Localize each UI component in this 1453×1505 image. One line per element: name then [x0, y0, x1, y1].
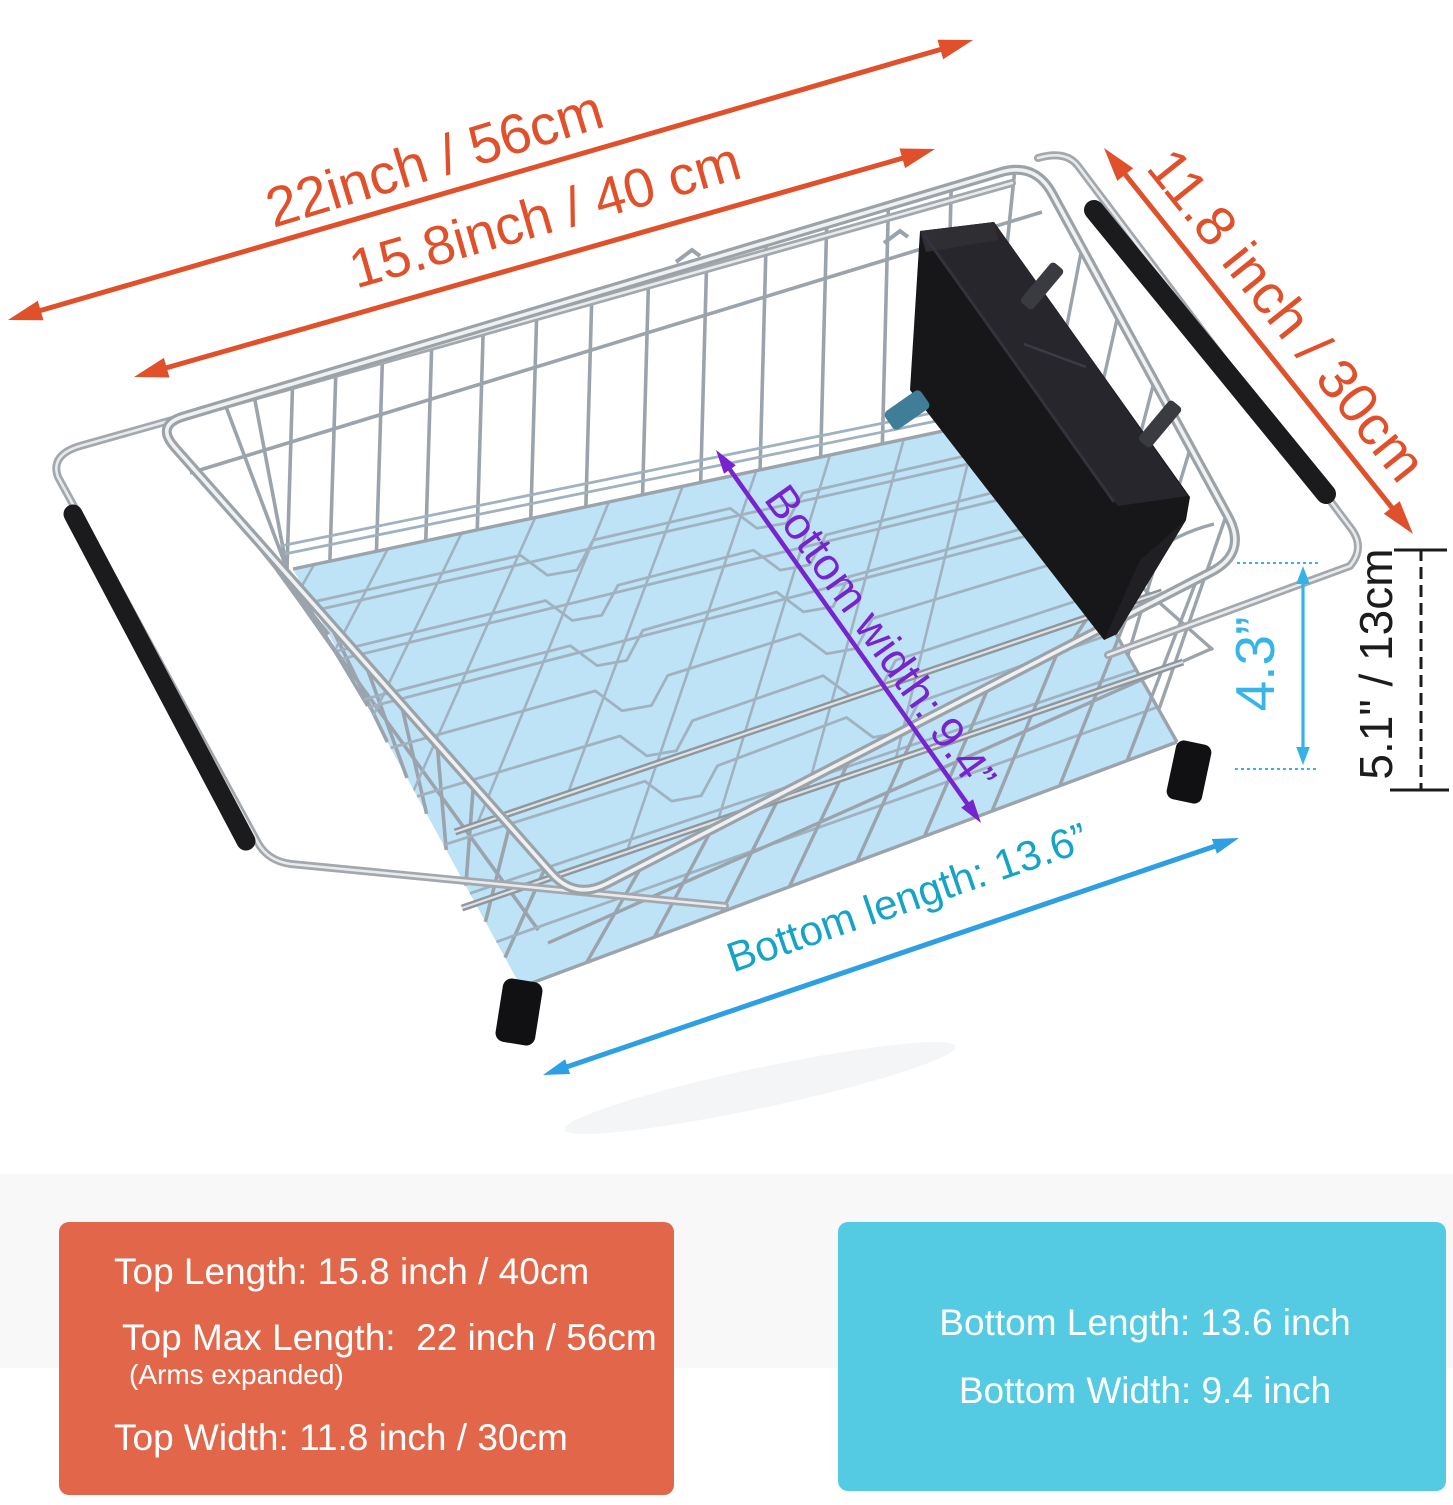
svg-text:5.1" / 13cm: 5.1" / 13cm [1350, 548, 1402, 779]
svg-text:Top Max Length: 22 inch / 56c: Top Max Length: 22 inch / 56cm [122, 1317, 657, 1358]
svg-text:(Arms expanded): (Arms expanded) [129, 1359, 344, 1390]
svg-text:Bottom Length: 13.6 inch: Bottom Length: 13.6 inch [939, 1302, 1350, 1343]
svg-text:4.3”: 4.3” [1224, 617, 1286, 712]
svg-text:Top Width: 11.8 inch / 30cm: Top Width: 11.8 inch / 30cm [114, 1417, 568, 1458]
svg-text:Bottom Width: 9.4 inch: Bottom Width: 9.4 inch [959, 1370, 1331, 1411]
svg-text:Top Length: 15.8 inch / 40cm: Top Length: 15.8 inch / 40cm [114, 1251, 589, 1292]
